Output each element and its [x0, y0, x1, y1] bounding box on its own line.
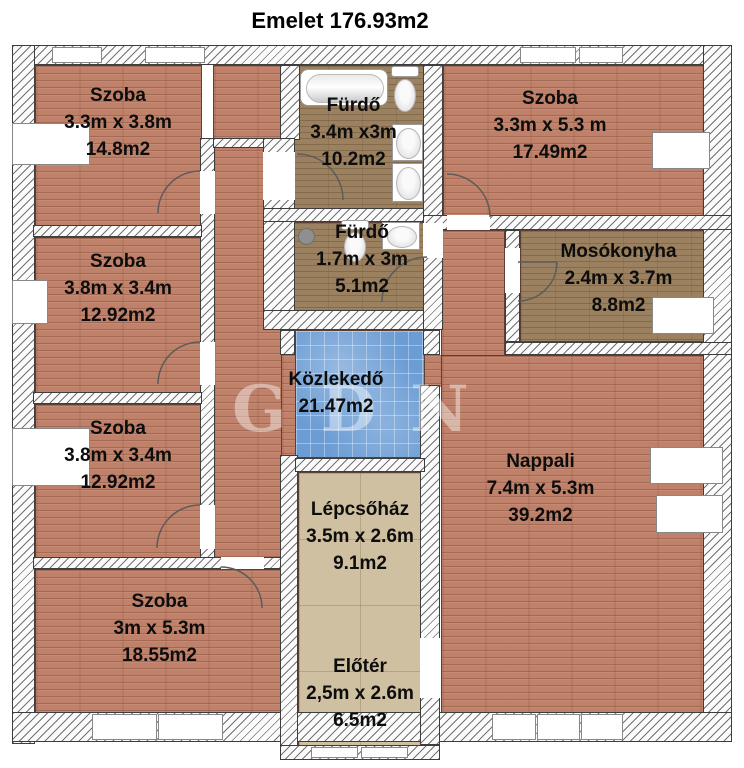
wall-eloter-bottom: [280, 745, 440, 760]
room-name: Előtér: [272, 653, 448, 680]
wall-szoba1-szoba2: [33, 225, 202, 237]
room-label-szoba-bottom-left: Szoba 3m x 5.3m 18.55m2: [35, 588, 284, 669]
page-title: Emelet 176.93m2: [0, 8, 680, 34]
room-dims: 3.8m x 3.4m: [33, 275, 203, 302]
window-top-4: [579, 47, 623, 63]
room-dims: 3.8m x 3.4m: [33, 442, 203, 469]
room-label-kozlekedo: Közlekedő 21.47m2: [255, 366, 417, 420]
room-area: 21.47m2: [255, 393, 417, 420]
room-label-lepcsohaz: Lépcsőház 3.5m x 2.6m 9.1m2: [272, 496, 448, 577]
wall-top: [12, 45, 732, 65]
room-label-furdo-kis: Fürdő 1.7m x 3m 5.1m2: [287, 219, 437, 300]
door-gap-szoba-bl: [221, 557, 264, 569]
room-area: 8.8m2: [505, 292, 732, 319]
toilet-tank-icon: [391, 66, 419, 77]
room-dims: 2.4m x 3.7m: [505, 265, 732, 292]
window-szoba-bl-1: [92, 714, 157, 740]
room-name: Nappali: [408, 448, 673, 475]
room-label-furdo-nagy: Fürdő 3.4m x3m 10.2m2: [282, 92, 425, 173]
window-top-3: [520, 47, 576, 63]
room-dims: 3.4m x3m: [282, 119, 425, 146]
room-label-eloter: Előtér 2,5m x 2.6m 6.5m2: [272, 653, 448, 734]
door-gap-szoba-tl: [200, 171, 215, 214]
room-area: 18.55m2: [35, 642, 284, 669]
wall-nook-bottom: [213, 138, 265, 148]
window-nappali-bottom-1: [492, 714, 536, 740]
room-label-szoba-top-left: Szoba 3.3m x 3.8m 14.8m2: [38, 82, 198, 163]
room-dims: 3.3m x 5.3 m: [425, 112, 675, 139]
room-area: 6.5m2: [272, 707, 448, 734]
wall-furdo2-kozlekedo: [263, 310, 440, 330]
room-dims: 3m x 5.3m: [35, 615, 284, 642]
room-dims: 2,5m x 2.6m: [272, 680, 448, 707]
room-name: Fürdő: [287, 219, 437, 246]
room-area: 14.8m2: [38, 136, 198, 163]
floor-nappali-upper: [441, 230, 505, 360]
window-eloter-door-1: [311, 747, 358, 758]
room-area: 12.92m2: [33, 469, 203, 496]
room-name: Mosókonyha: [505, 238, 732, 265]
room-area: 10.2m2: [282, 146, 425, 173]
room-name: Lépcsőház: [272, 496, 448, 523]
room-name: Fürdő: [282, 92, 425, 119]
window-nappali-bottom-3: [581, 714, 623, 740]
window-szoba-bl-2: [158, 714, 223, 740]
room-dims: 1.7m x 3m: [287, 246, 437, 273]
floor-passage-nappali: [423, 355, 441, 387]
room-name: Szoba: [425, 85, 675, 112]
room-area: 12.92m2: [33, 302, 203, 329]
room-area: 9.1m2: [272, 550, 448, 577]
room-dims: 3.3m x 3.8m: [38, 109, 198, 136]
floor-nappali: [441, 355, 705, 714]
room-label-szoba-top-right: Szoba 3.3m x 5.3 m 17.49m2: [425, 85, 675, 166]
room-dims: 3.5m x 2.6m: [272, 523, 448, 550]
room-label-szoba-left-3: Szoba 3.8m x 3.4m 12.92m2: [33, 415, 203, 496]
wall-kozlekedo-corner-left: [280, 330, 295, 355]
wall-kozlekedo-corner-right: [423, 330, 440, 355]
room-name: Szoba: [33, 248, 203, 275]
wall-kozlekedo-bottom: [295, 458, 425, 472]
window-top-1: [52, 47, 102, 63]
wall-szoba2-szoba3: [33, 392, 202, 404]
room-name: Szoba: [35, 588, 284, 615]
window-eloter-door-2: [361, 747, 408, 758]
window-top-2: [145, 47, 205, 63]
room-label-szoba-left-2: Szoba 3.8m x 3.4m 12.92m2: [33, 248, 203, 329]
wall-mosokonyha-bottom: [505, 342, 732, 355]
room-area: 17.49m2: [425, 139, 675, 166]
window-nappali-bottom-2: [537, 714, 580, 740]
room-name: Közlekedő: [255, 366, 417, 393]
room-label-mosokonyha: Mosókonyha 2.4m x 3.7m 8.8m2: [505, 238, 732, 319]
room-name: Szoba: [38, 82, 198, 109]
door-gap-szoba-tr: [447, 215, 490, 230]
door-gap-szoba-l2: [200, 342, 215, 385]
room-area: 5.1m2: [287, 273, 437, 300]
room-name: Szoba: [33, 415, 203, 442]
door-gap-szoba-l3: [200, 505, 215, 549]
floor-plan: Emelet 176.93m2: [0, 0, 744, 768]
